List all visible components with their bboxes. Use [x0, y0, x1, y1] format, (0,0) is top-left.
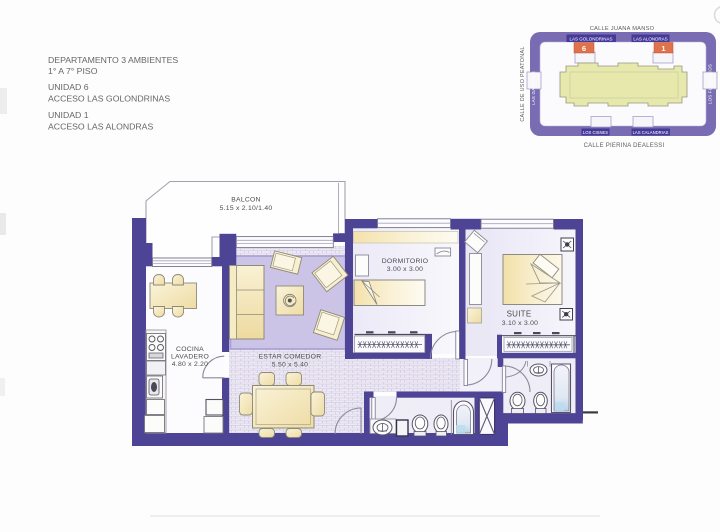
svg-text:DEPARTAMENTO 3 AMBIENTES: DEPARTAMENTO 3 AMBIENTES [48, 55, 178, 65]
svg-text:ACCESO LAS ALONDRAS: ACCESO LAS ALONDRAS [48, 122, 153, 132]
svg-text:SUITE: SUITE [507, 310, 532, 319]
svg-text:1: 1 [661, 44, 665, 53]
svg-text:CALLE PIERINA DEALESSI: CALLE PIERINA DEALESSI [584, 143, 665, 149]
svg-text:UNIDAD 6: UNIDAD 6 [48, 82, 89, 92]
svg-text:LAVADERO: LAVADERO [171, 354, 209, 361]
svg-text:6: 6 [582, 44, 586, 53]
svg-text:ACCESO LAS GOLONDRINAS: ACCESO LAS GOLONDRINAS [48, 94, 170, 104]
svg-text:4.80 x 2.20: 4.80 x 2.20 [172, 361, 208, 368]
svg-text:BALCON: BALCON [231, 197, 260, 204]
svg-text:LAS GOLONDRINAS: LAS GOLONDRINAS [569, 36, 612, 41]
svg-text:5.50 x 5.40: 5.50 x 5.40 [272, 362, 308, 369]
svg-text:LOS FLAMENCOS: LOS FLAMENCOS [708, 64, 713, 104]
svg-text:ESTAR COMEDOR: ESTAR COMEDOR [259, 354, 322, 361]
svg-text:CALLE JUANA MANSO: CALLE JUANA MANSO [590, 26, 655, 32]
svg-text:COCINA: COCINA [176, 346, 204, 353]
svg-text:LAS CALANDRIAS: LAS CALANDRIAS [633, 130, 669, 135]
svg-text:5.15 x 2.10/1.40: 5.15 x 2.10/1.40 [220, 205, 273, 212]
svg-text:LOS CISNES: LOS CISNES [583, 130, 608, 135]
svg-text:DORMITORIO: DORMITORIO [382, 258, 429, 265]
svg-text:1° A 7° PISO: 1° A 7° PISO [48, 66, 98, 76]
svg-text:UNIDAD 1: UNIDAD 1 [48, 110, 89, 120]
svg-text:LAS GAVIOTAS: LAS GAVIOTAS [531, 71, 536, 105]
svg-text:CALLE DE USO PEATONAL: CALLE DE USO PEATONAL [520, 46, 526, 121]
svg-text:3.10 x 3.00: 3.10 x 3.00 [502, 320, 538, 327]
svg-text:3.00 x 3.00: 3.00 x 3.00 [387, 266, 423, 273]
svg-text:LAS ALONDRAS: LAS ALONDRAS [633, 36, 667, 41]
